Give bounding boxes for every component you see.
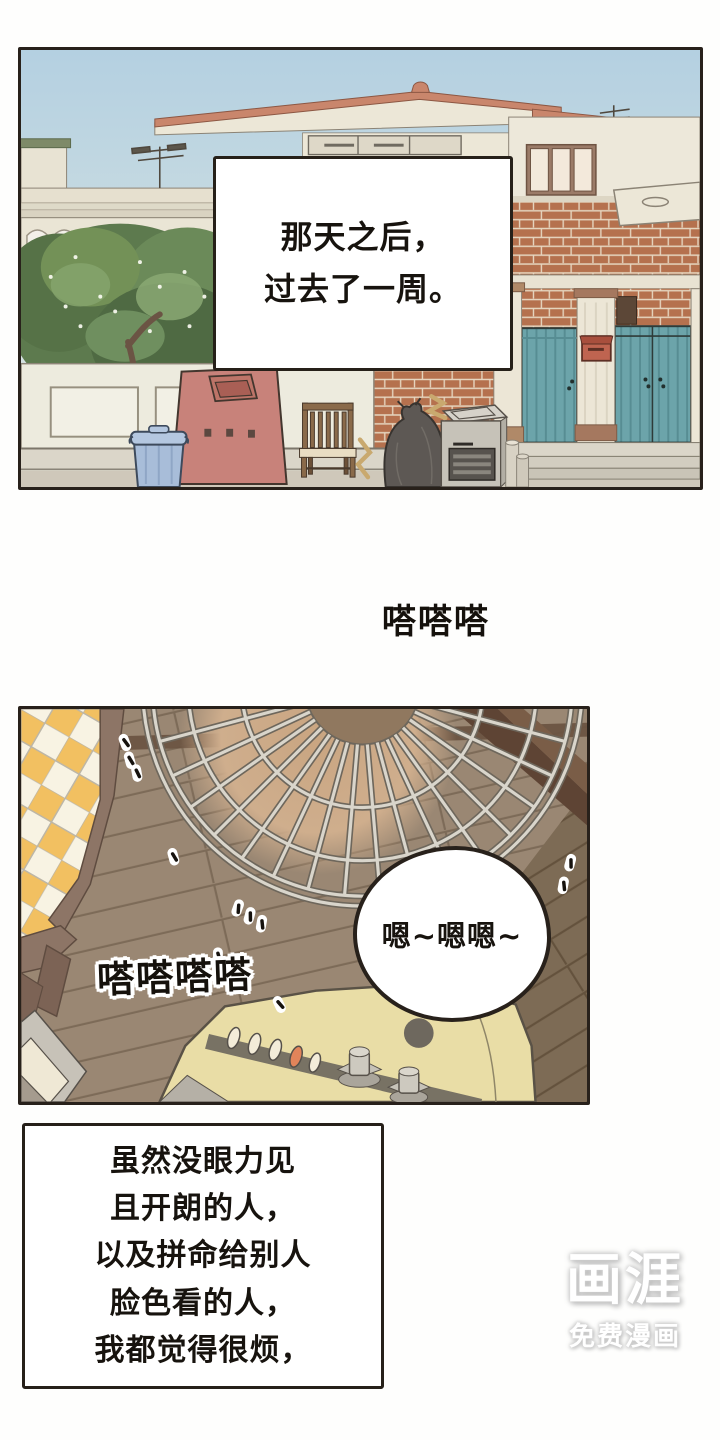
panel-street-scene: 那天之后， 过去了一周。 [18, 47, 703, 490]
donation-bin [172, 368, 287, 484]
watermark-tagline: 免费漫画 [540, 1316, 710, 1353]
mailbox [580, 336, 613, 361]
caption-line: 那天之后， [280, 212, 445, 263]
narration-line: 且开朗的人， [110, 1185, 296, 1232]
watermark-logo: 画涯 [540, 1250, 710, 1312]
sfx-tapping-small: 嗒嗒嗒 [382, 594, 490, 643]
narration-caption-2: 虽然没眼力见 且开朗的人， 以及拼命给别人 脸色看的人， 我都觉得很烦， [22, 1123, 384, 1389]
comic-page: 那天之后， 过去了一周。 嗒嗒嗒 [0, 0, 720, 1440]
panel-fan-scene: 嗯~嗯嗯~ 嗒嗒嗒嗒 [18, 706, 590, 1105]
caption-line: 过去了一周。 [264, 264, 462, 315]
gate-house [485, 182, 700, 479]
trash-bin-blue [129, 426, 188, 487]
dark-knob-circle [404, 1018, 434, 1048]
sfx-tapping-big: 嗒嗒嗒嗒 [96, 944, 254, 1003]
speech-bubble: 嗯~嗯嗯~ [353, 846, 551, 1022]
narration-caption-1: 那天之后， 过去了一周。 [213, 156, 513, 371]
narration-line: 以及拼命给别人 [95, 1232, 312, 1279]
speech-text: 嗯~嗯嗯~ [382, 913, 523, 955]
watermark: 画涯 免费漫画 [540, 1250, 710, 1353]
narration-line: 虽然没眼力见 [110, 1138, 296, 1185]
narration-line: 脸色看的人， [110, 1280, 296, 1327]
narration-line: 我都觉得很烦， [95, 1327, 312, 1374]
